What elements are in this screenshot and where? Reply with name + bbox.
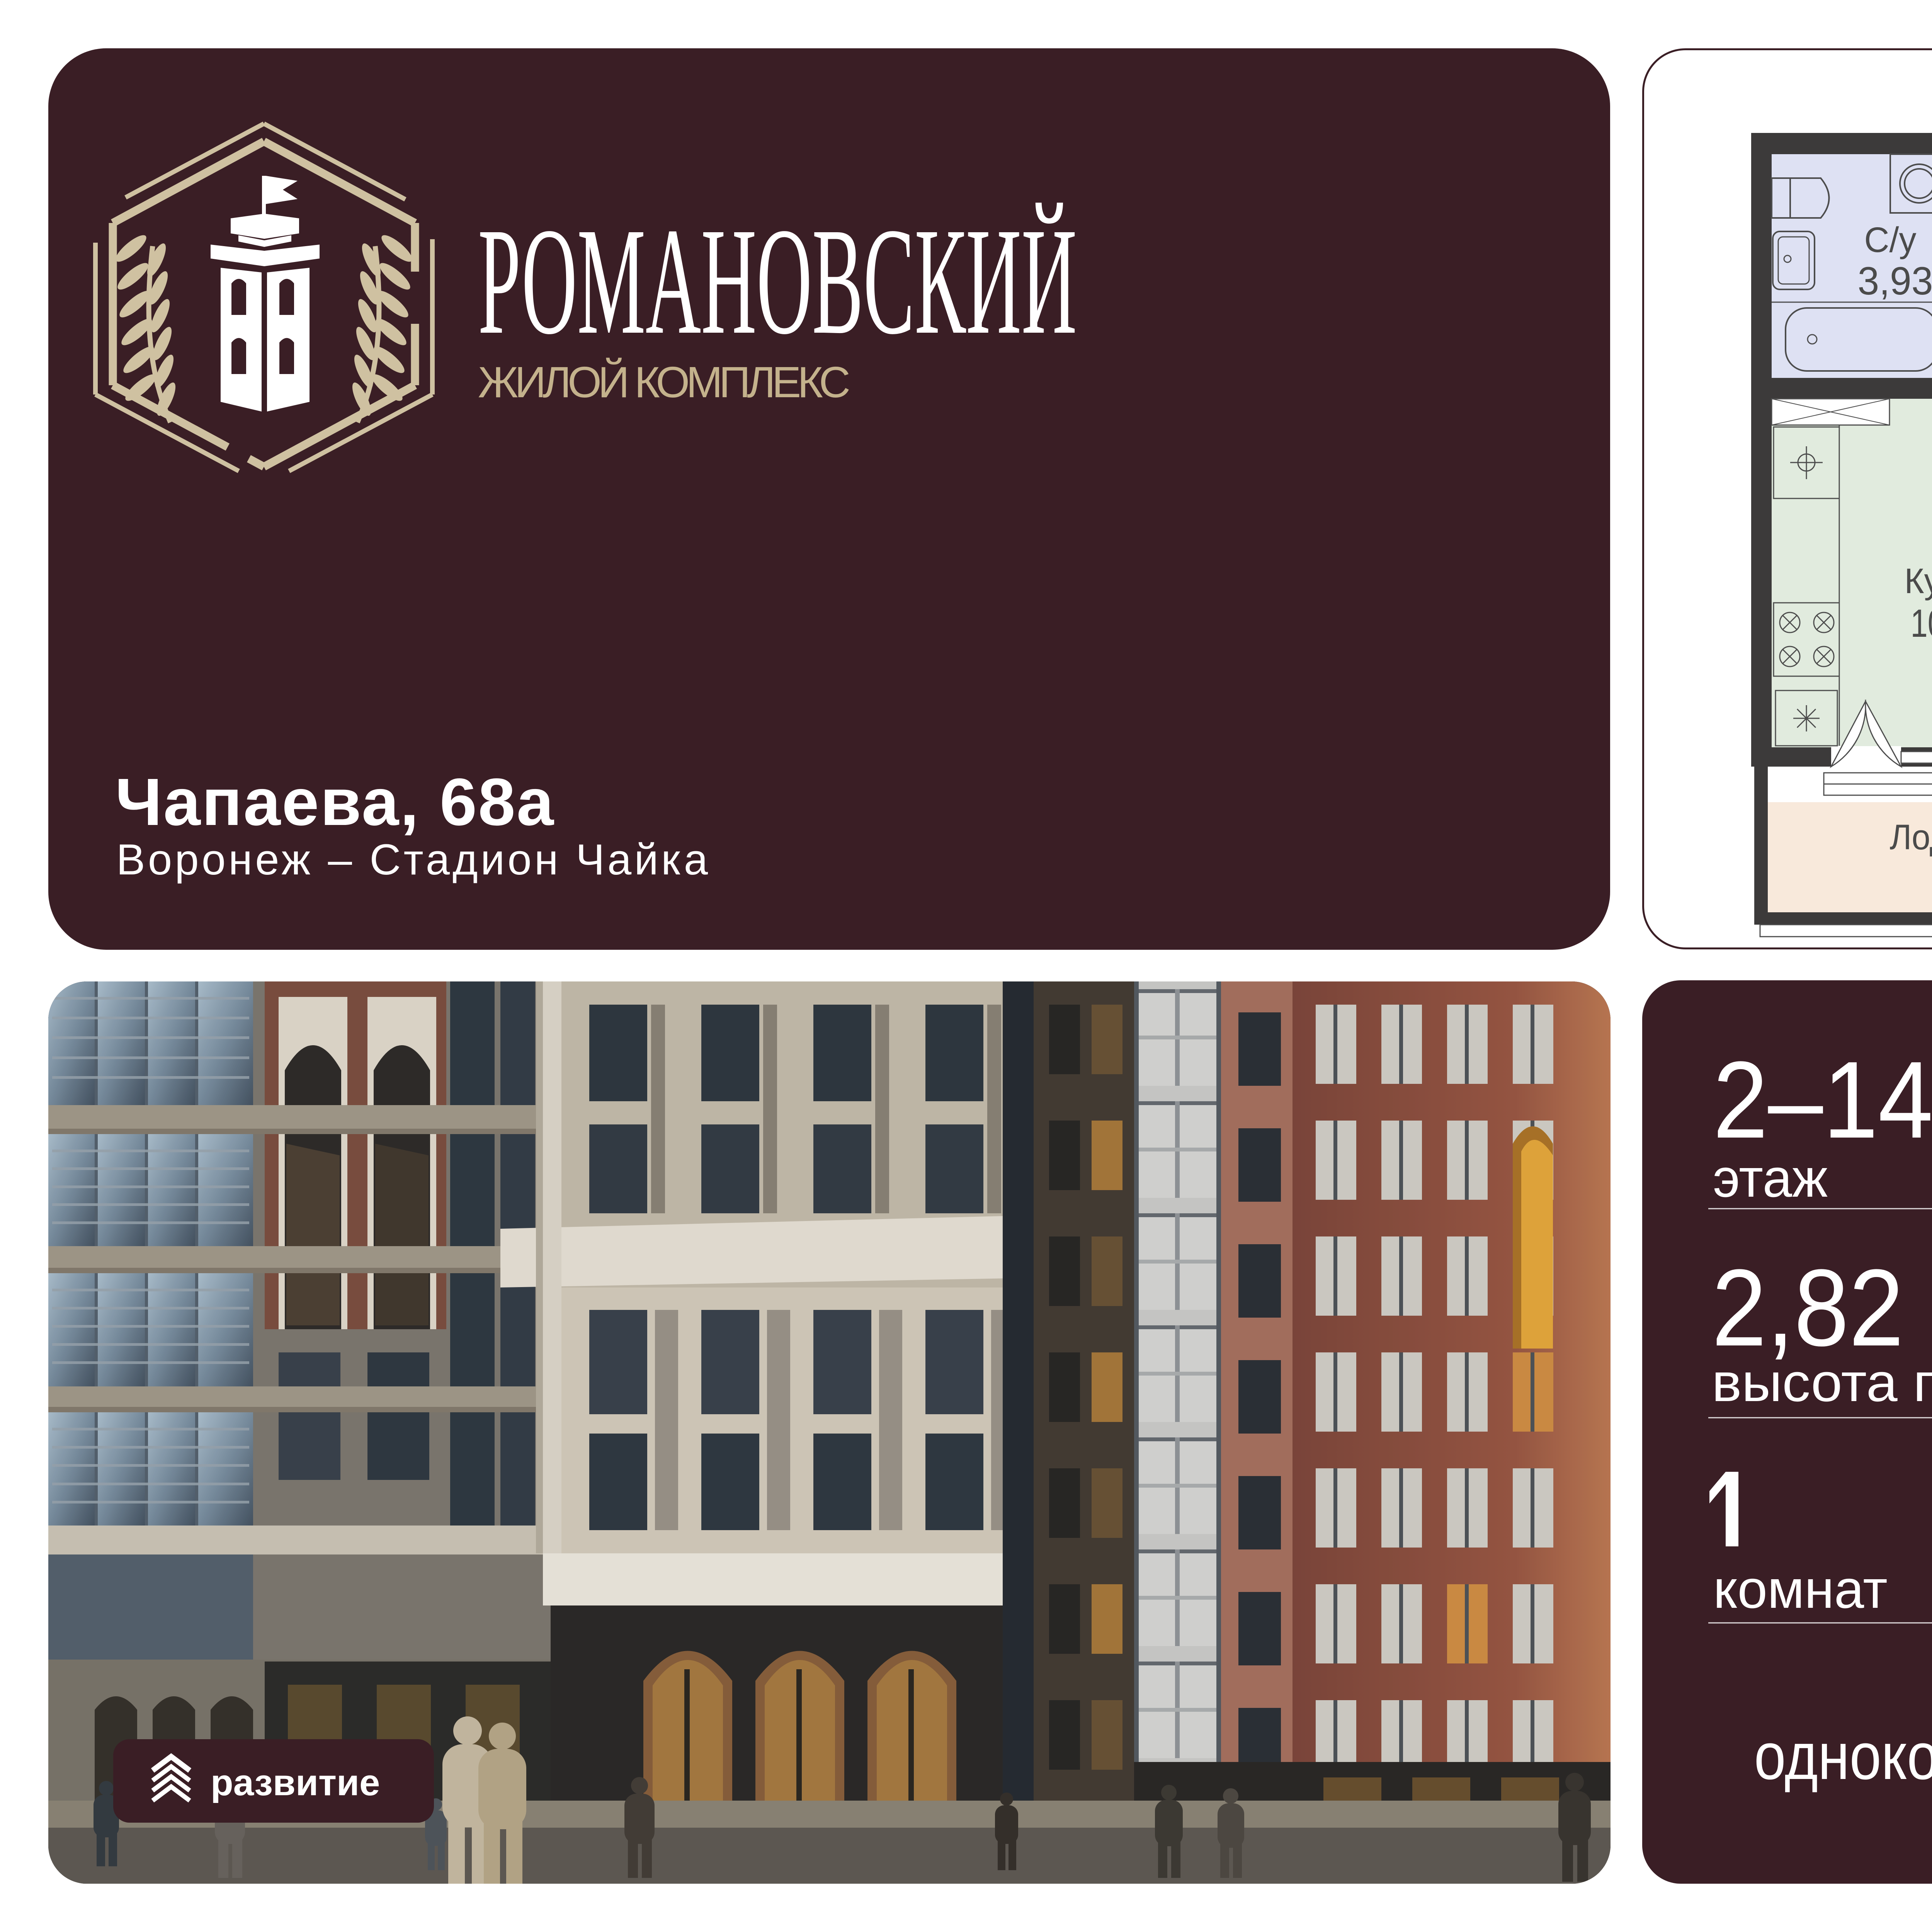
svg-text:однокомнатная квартира: однокомнатная квартира xyxy=(1754,1719,1932,1793)
svg-text:2–14: 2–14 xyxy=(1713,1039,1932,1161)
svg-text:ЖИЛОЙ КОМПЛЕКС: ЖИЛОЙ КОМПЛЕКС xyxy=(478,357,850,406)
svg-text:РОМАНОВСКИЙ: РОМАНОВСКИЙ xyxy=(478,196,1077,366)
svg-text:Лоджия: Лоджия xyxy=(1890,818,1932,857)
svg-text:Чапаева, 68а: Чапаева, 68а xyxy=(115,764,554,839)
svg-text:2,82: 2,82 xyxy=(1712,1247,1904,1369)
svg-text:Воронеж – Стадион Чайка: Воронеж – Стадион Чайка xyxy=(116,835,708,884)
svg-text:3,93: 3,93 xyxy=(1858,259,1932,303)
svg-text:этаж: этаж xyxy=(1713,1148,1828,1208)
svg-text:10,37: 10,37 xyxy=(1911,601,1932,645)
svg-text:развитие: развитие xyxy=(211,1762,380,1803)
svg-text:высота потолков, м: высота потолков, м xyxy=(1712,1352,1932,1413)
svg-text:С/у: С/у xyxy=(1864,220,1917,260)
svg-text:Кухня: Кухня xyxy=(1905,561,1932,601)
svg-text:комнат: комнат xyxy=(1713,1559,1888,1619)
